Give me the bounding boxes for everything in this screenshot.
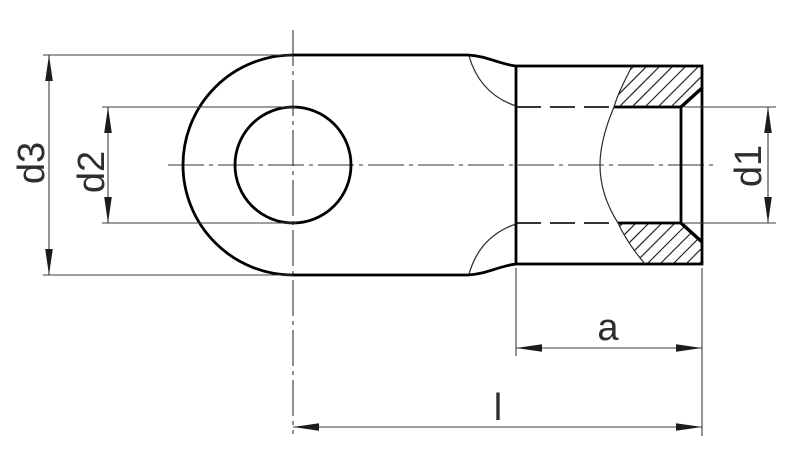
d3-arrow-up (45, 55, 53, 81)
d1-arrow-down (764, 197, 772, 223)
dimension-a: a (516, 268, 702, 436)
d1-arrow-up (764, 107, 772, 133)
l-arrow-left (293, 423, 319, 431)
centerlines (168, 30, 714, 434)
d2-arrow-down (104, 197, 112, 223)
technical-drawing-page: d3 d2 d1 a l (0, 0, 800, 466)
dimension-l: l (293, 387, 702, 431)
palm-to-barrel-transition-bottom (468, 264, 516, 275)
a-label: a (597, 307, 619, 349)
l-arrow-right (676, 423, 702, 431)
d2-label: d2 (71, 151, 113, 193)
d3-arrow-down (45, 249, 53, 275)
a-arrow-left (516, 344, 542, 352)
d3-label: d3 (11, 142, 53, 184)
palm-to-barrel-transition-top (468, 55, 516, 66)
l-label: l (494, 387, 502, 429)
d1-label: d1 (728, 145, 770, 187)
d2-arrow-up (104, 107, 112, 133)
a-arrow-right (676, 344, 702, 352)
ring-lug-technical-drawing: d3 d2 d1 a l (0, 0, 800, 466)
